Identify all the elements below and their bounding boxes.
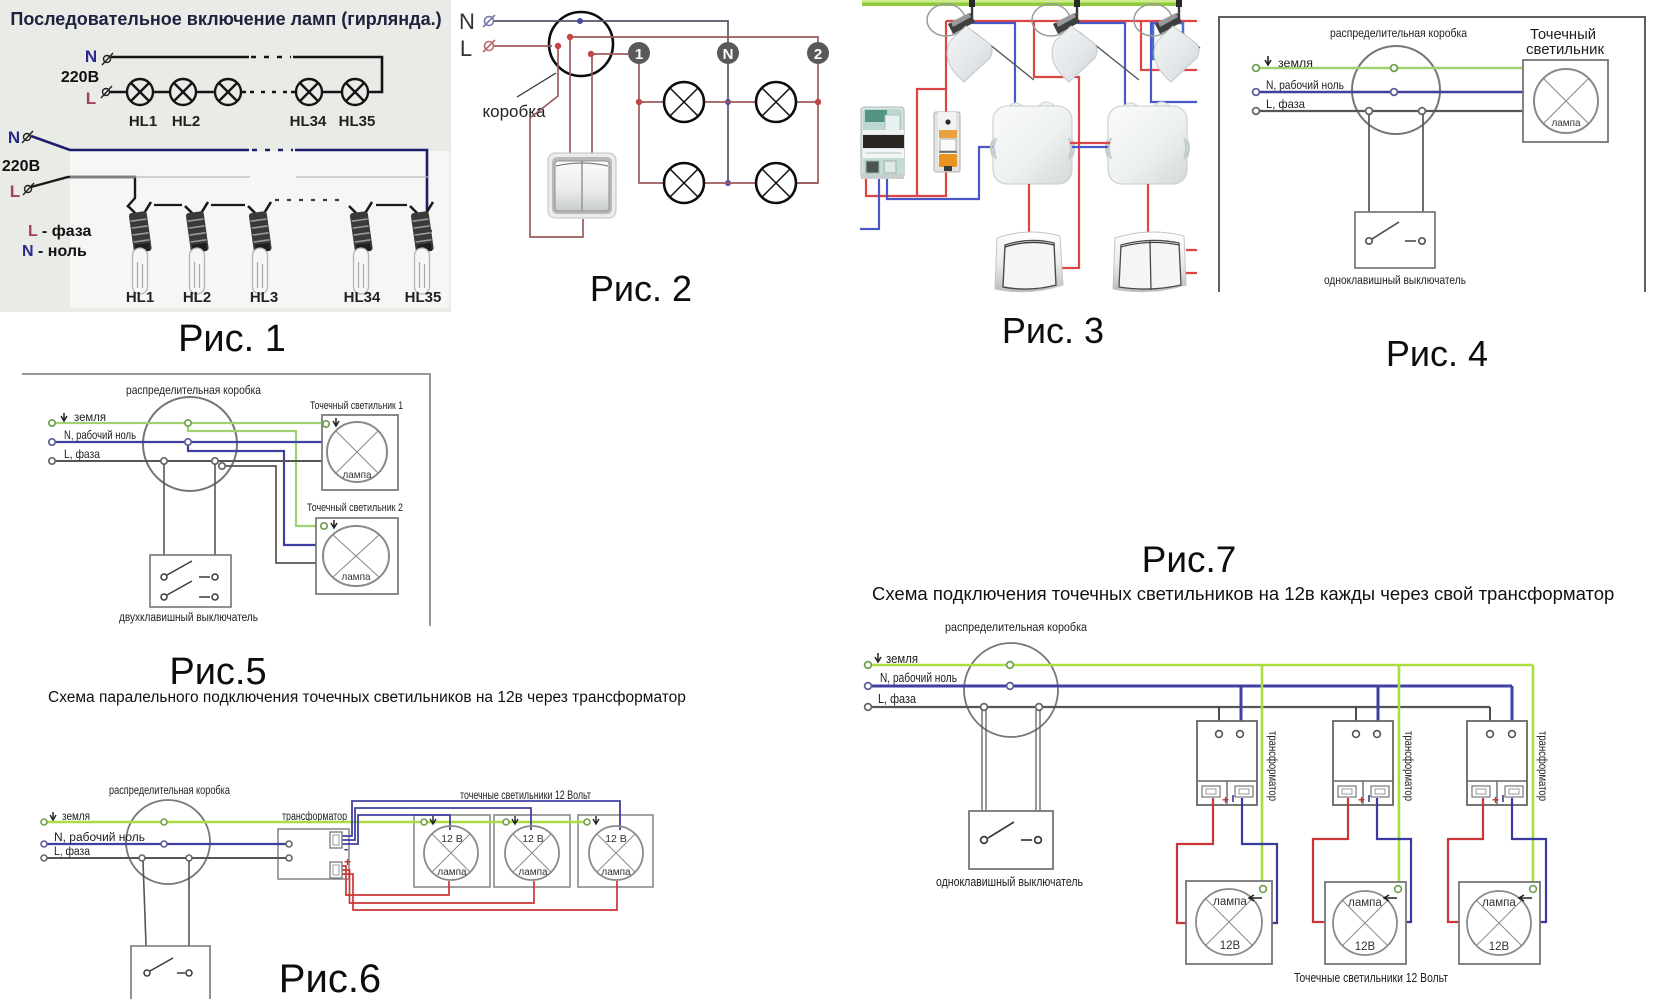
svg-text:трансформатор: трансформатор	[1266, 731, 1280, 801]
svg-text:лампа: лампа	[1348, 897, 1382, 909]
svg-text:12В: 12В	[1220, 940, 1241, 952]
svg-text:L, фаза: L, фаза	[54, 846, 91, 858]
svg-text:Рис. 2: Рис. 2	[590, 268, 692, 309]
svg-text:N: N	[8, 128, 20, 147]
svg-text:лампа: лампа	[1552, 117, 1581, 129]
svg-text:лампа: лампа	[518, 867, 548, 878]
svg-text:светильник: светильник	[1526, 41, 1604, 58]
svg-text:HL35: HL35	[405, 289, 442, 306]
svg-text:лампа: лампа	[437, 867, 467, 878]
svg-text:Точечный светильник 1: Точечный светильник 1	[310, 400, 403, 412]
svg-text:L, фаза: L, фаза	[878, 692, 916, 706]
svg-text:HL2: HL2	[172, 113, 200, 130]
svg-text:L, фаза: L, фаза	[1266, 97, 1305, 111]
svg-text:+: +	[344, 855, 351, 869]
svg-text:220В: 220В	[61, 69, 99, 86]
svg-text:12 В: 12 В	[522, 833, 544, 845]
svg-text:N: N	[459, 9, 475, 34]
svg-text:N, рабочий ноль: N, рабочий ноль	[1266, 78, 1344, 92]
svg-text:12В: 12В	[1355, 941, 1376, 953]
svg-text:Рис. 4: Рис. 4	[1386, 333, 1488, 374]
svg-text:2: 2	[814, 46, 822, 63]
svg-text:лампа: лампа	[1482, 897, 1516, 909]
svg-text:коробка: коробка	[483, 102, 547, 121]
svg-text:Точечные светильники 12 Вольт: Точечные светильники 12 Вольт	[1294, 970, 1448, 985]
svg-text:Рис.7: Рис.7	[1142, 539, 1237, 580]
svg-text:Последовательное включение лам: Последовательное включение ламп (гирлянд…	[10, 9, 441, 29]
svg-text:HL2: HL2	[183, 289, 211, 306]
svg-text:распределительная коробка: распределительная коробка	[109, 783, 230, 797]
svg-text:трансформатор: трансформатор	[1536, 731, 1550, 801]
svg-text:земля: земля	[1278, 56, 1313, 70]
svg-text:12В: 12В	[1489, 941, 1510, 953]
svg-text:Схема паралельного подключения: Схема паралельного подключения точечных …	[48, 689, 686, 706]
svg-text:двухклавишный выключатель: двухклавишный выключатель	[119, 612, 258, 624]
svg-text:распределительная коробка: распределительная коробка	[945, 620, 1087, 634]
svg-text:-: -	[344, 841, 348, 856]
svg-text:Рис. 1: Рис. 1	[178, 318, 286, 360]
svg-text:HL1: HL1	[129, 113, 157, 130]
svg-text:лампа: лампа	[1213, 896, 1247, 908]
svg-text:одноклавишный выключатель: одноклавишный выключатель	[936, 875, 1083, 889]
svg-text:L - фаза: L - фаза	[28, 223, 92, 240]
svg-text:N: N	[723, 46, 734, 63]
svg-text:L, фаза: L, фаза	[64, 447, 100, 461]
svg-text:+: +	[1358, 793, 1365, 807]
svg-text:12 В: 12 В	[605, 833, 627, 845]
svg-text:распределительная коробка: распределительная коробка	[126, 383, 261, 397]
svg-text:N, рабочий ноль: N, рабочий ноль	[54, 832, 145, 844]
svg-text:+: +	[1492, 793, 1499, 807]
svg-text:трансформатор: трансформатор	[1402, 731, 1416, 801]
svg-text:220В: 220В	[2, 158, 40, 175]
svg-text:N, рабочий ноль: N, рабочий ноль	[64, 428, 136, 442]
svg-text:распределительная коробка: распределительная коробка	[1330, 26, 1467, 40]
svg-text:земля: земля	[74, 410, 106, 424]
svg-text:L: L	[10, 182, 20, 201]
svg-text:лампа: лампа	[601, 867, 631, 878]
svg-text:Рис.5: Рис.5	[169, 651, 266, 693]
svg-text:N - ноль: N - ноль	[22, 243, 87, 260]
svg-text:HL3: HL3	[250, 289, 278, 306]
svg-text:лампа: лампа	[342, 571, 371, 583]
svg-text:12 В: 12 В	[441, 833, 463, 845]
svg-text:Рис.6: Рис.6	[279, 957, 381, 1000]
svg-text:1: 1	[635, 46, 643, 63]
svg-text:L: L	[86, 89, 96, 108]
svg-text:HL34: HL34	[290, 113, 327, 130]
svg-text:земля: земля	[886, 652, 918, 666]
svg-text:Рис. 3: Рис. 3	[1002, 310, 1104, 351]
svg-text:точечные светильники 12 Вольт: точечные светильники 12 Вольт	[460, 788, 591, 802]
svg-text:HL34: HL34	[344, 289, 381, 306]
svg-text:N, рабочий ноль: N, рабочий ноль	[880, 671, 957, 685]
svg-text:N: N	[85, 47, 97, 66]
svg-text:Точечный светильник 2: Точечный светильник 2	[307, 502, 403, 514]
svg-text:Схема подключения точечных све: Схема подключения точечных светильников …	[872, 583, 1614, 604]
svg-text:+: +	[1222, 793, 1229, 807]
svg-text:L: L	[460, 36, 472, 61]
svg-text:лампа: лампа	[343, 469, 372, 481]
svg-text:одноклавишный выключатель: одноклавишный выключатель	[1324, 275, 1466, 287]
svg-text:HL35: HL35	[339, 113, 376, 130]
svg-text:HL1: HL1	[126, 289, 154, 306]
svg-text:земля: земля	[62, 811, 90, 823]
